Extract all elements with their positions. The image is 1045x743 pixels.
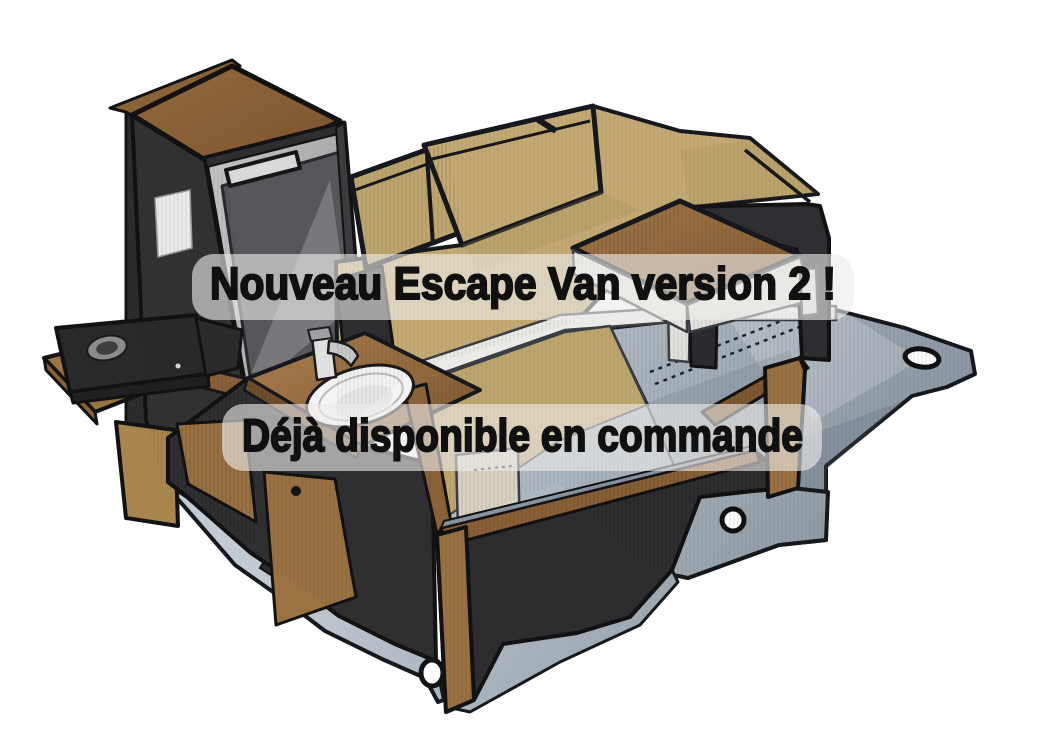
- svg-text:Déjà disponible en commande: Déjà disponible en commande: [242, 410, 803, 461]
- svg-text:Nouveau Escape Van version 2 !: Nouveau Escape Van version 2 !: [210, 258, 836, 309]
